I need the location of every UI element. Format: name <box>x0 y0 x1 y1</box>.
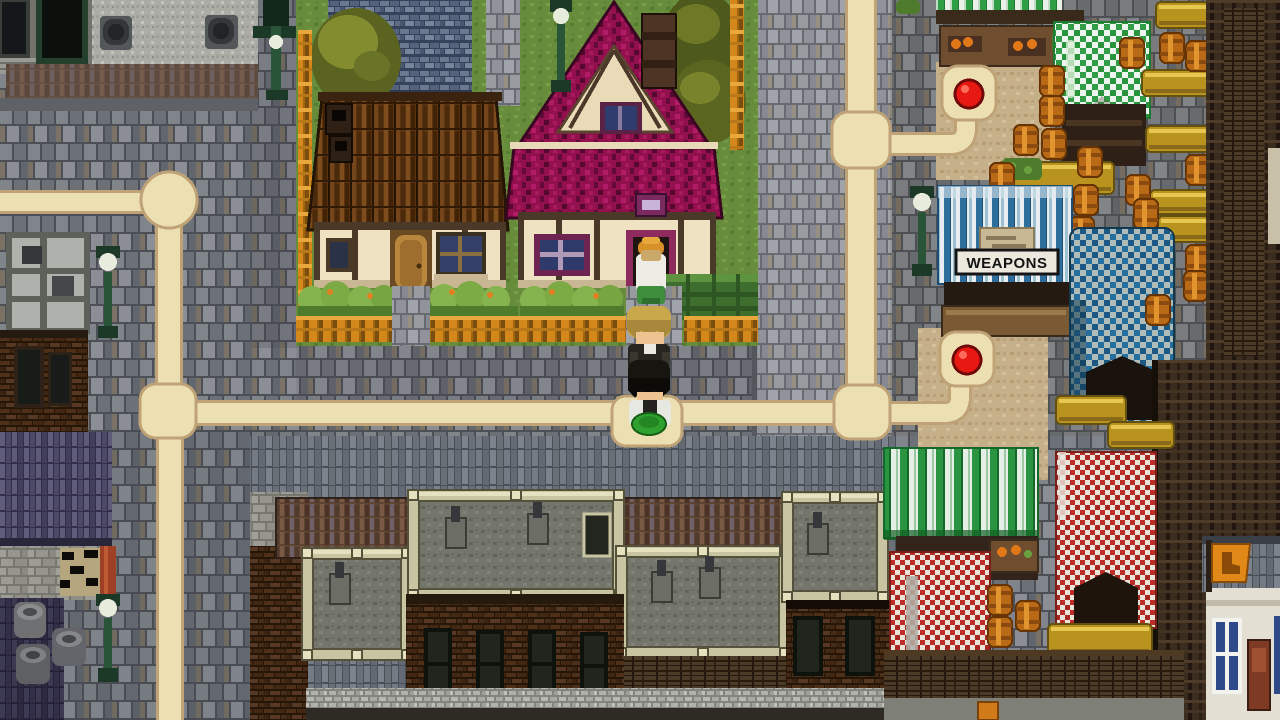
svg-text:WEAPONS: WEAPONS <box>966 255 1047 272</box>
